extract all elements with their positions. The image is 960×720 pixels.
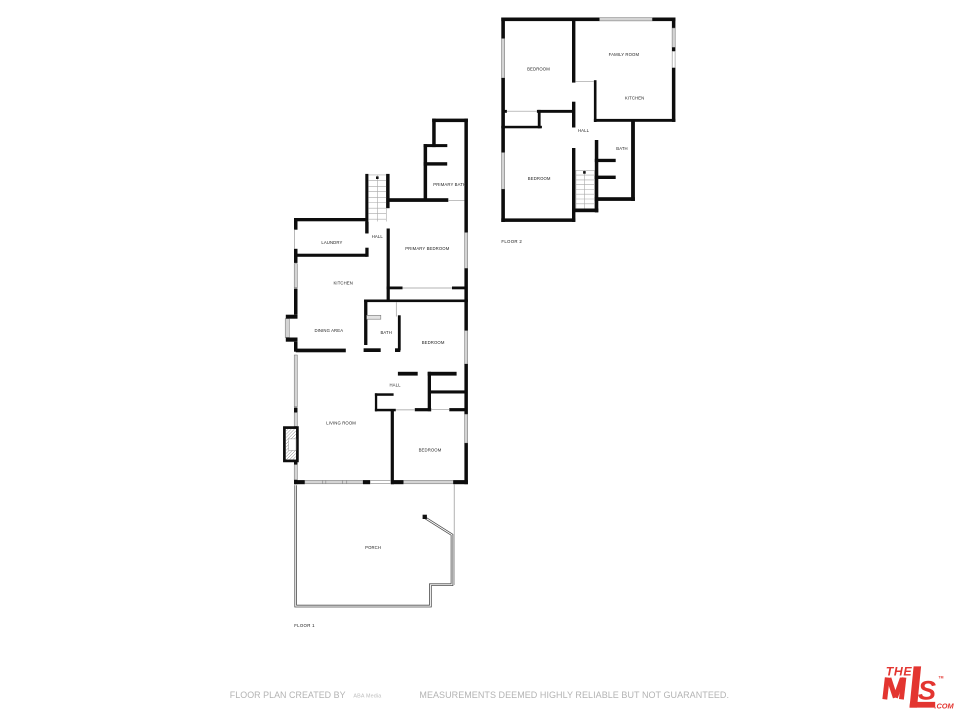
svg-text:HALL: HALL [389,383,401,388]
svg-text:BATH: BATH [380,330,392,335]
svg-text:KITCHEN: KITCHEN [333,281,353,286]
svg-text:THE: THE [886,664,913,678]
svg-text:FLOOR 1: FLOOR 1 [294,623,315,628]
svg-text:HALL: HALL [372,234,384,239]
svg-text:FLOOR PLAN CREATED BY: FLOOR PLAN CREATED BY [230,690,346,700]
svg-text:ABA Media: ABA Media [353,693,381,699]
svg-text:BEDROOM: BEDROOM [419,448,442,453]
svg-text:LIVING ROOM: LIVING ROOM [326,421,356,426]
svg-text:PRIMARY BEDROOM: PRIMARY BEDROOM [405,246,449,251]
svg-text:DINING AREA: DINING AREA [314,328,343,333]
svg-text:BEDROOM: BEDROOM [527,67,550,72]
svg-text:MEASUREMENTS DEEMED HIGHLY REL: MEASUREMENTS DEEMED HIGHLY RELIABLE BUT … [419,690,729,700]
svg-text:BATH: BATH [616,146,628,151]
svg-text:FAMILY ROOM: FAMILY ROOM [609,52,640,57]
svg-text:BEDROOM: BEDROOM [422,340,445,345]
svg-text:.COM: .COM [934,701,954,710]
svg-text:LAUNDRY: LAUNDRY [321,240,342,245]
svg-text:KITCHEN: KITCHEN [625,96,645,101]
svg-text:PRIMARY BATH: PRIMARY BATH [433,182,466,187]
svg-text:TM: TM [939,675,944,679]
svg-text:PORCH: PORCH [365,545,381,550]
svg-text:HALL: HALL [578,128,590,133]
svg-text:FLOOR 2: FLOOR 2 [501,239,522,244]
svg-text:BEDROOM: BEDROOM [528,176,551,181]
svg-text:S: S [918,674,936,705]
